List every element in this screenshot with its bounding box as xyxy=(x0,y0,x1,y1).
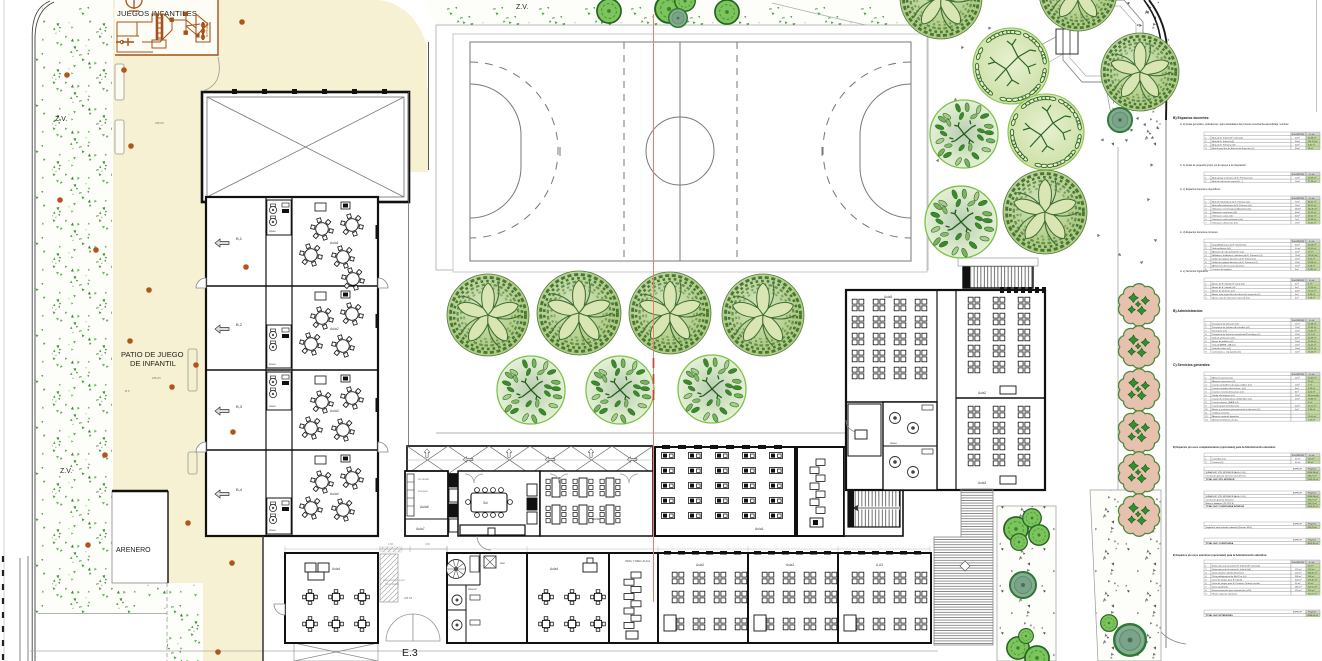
svg-text:S. útil: S. útil xyxy=(1309,197,1315,200)
svg-text:9,28 m²: 9,28 m² xyxy=(1308,264,1315,267)
svg-text:14,45 m²: 14,45 m² xyxy=(1308,343,1317,346)
svg-text:S.út (RD132): S.út (RD132) xyxy=(1292,279,1304,282)
svg-text:3005,81 m²: 3005,81 m² xyxy=(1308,542,1319,545)
svg-text:B,4: B,4 xyxy=(236,487,243,492)
svg-text:20m²: 20m² xyxy=(1295,397,1300,400)
svg-text:S.út (RD132): S.út (RD132) xyxy=(1292,319,1304,322)
svg-text:104,93 m²: 104,93 m² xyxy=(1308,254,1318,257)
svg-text:Muros y tabiques (12-17% S): Muros y tabiques (12-17% S) xyxy=(1206,502,1235,505)
svg-text:A. a) Aulas generales, polival: A. a) Aulas generales, polivalentes, par… xyxy=(1180,123,1289,126)
svg-text:Secretaría (x1): Secretaría (x1) xyxy=(1212,329,1227,332)
svg-text:fotovoltaico: fotovoltaico xyxy=(385,582,400,586)
svg-text:15m²: 15m² xyxy=(1295,394,1300,397)
svg-text:S. útil: S. útil xyxy=(1309,561,1315,564)
svg-text:S.út (RD132): S.út (RD132) xyxy=(1292,133,1304,136)
svg-text:9,65 m²: 9,65 m² xyxy=(1308,257,1315,260)
svg-text:wc caudal: wc caudal xyxy=(418,478,429,481)
svg-text:11,7 m²: 11,7 m² xyxy=(1308,333,1315,336)
svg-text:S.út (RD132): S.út (RD132) xyxy=(1292,197,1304,200)
svg-text:DE INFANTIL: DE INFANTIL xyxy=(130,359,176,368)
svg-text:Armario bombonas de gas: Armario bombonas de gas xyxy=(1212,418,1239,421)
svg-text:Gimnasio: vestuarios (x2): Gimnasio: vestuarios (x2) xyxy=(1212,211,1237,214)
svg-text:90 m²: 90 m² xyxy=(1295,457,1301,460)
svg-text:5m²: 5m² xyxy=(1295,408,1299,411)
svg-text:3,00: 3,00 xyxy=(425,542,431,546)
svg-text:Despacho de Servicios orientac: Despacho de Servicios orientación/Psicól… xyxy=(1212,333,1260,336)
svg-text:12m²: 12m² xyxy=(1295,326,1300,329)
svg-text:40m²: 40m² xyxy=(1295,136,1300,139)
svg-text:13,05 m²: 13,05 m² xyxy=(1308,221,1317,224)
svg-text:15m²: 15m² xyxy=(1295,322,1300,325)
svg-text:Aseo: Aseo xyxy=(269,362,276,366)
svg-text:40m²: 40m² xyxy=(1295,289,1300,292)
svg-text:Aula de E. Primaria (x6): Aula de E. Primaria (x6) xyxy=(1212,143,1235,146)
svg-text:Z.V.: Z.V. xyxy=(516,4,528,11)
svg-text:88 m²: 88 m² xyxy=(1308,461,1314,464)
svg-text:10m²: 10m² xyxy=(1295,383,1300,386)
svg-text:S.út (RD132): S.út (RD132) xyxy=(1292,373,1304,376)
svg-text:10m²: 10m² xyxy=(1295,176,1300,179)
svg-text:Aula1: Aula1 xyxy=(786,563,794,567)
svg-text:SUMA SUP. ÚTIL INTERIOR (A+B+C: SUMA SUP. ÚTIL INTERIOR (A+B+C+D) xyxy=(1206,471,1246,474)
svg-text:1,95 m²: 1,95 m² xyxy=(1308,418,1315,421)
svg-text:916,75 m²: 916,75 m² xyxy=(1308,592,1318,595)
svg-text:30 m²: 30 m² xyxy=(1295,461,1301,464)
svg-text:8,85 m²: 8,85 m² xyxy=(1308,143,1315,146)
svg-text:496,81 m²: 496,81 m² xyxy=(1308,578,1318,581)
svg-text:A. b) Aulas de pequeño grupo y: A. b) Aulas de pequeño grupo y/o de apoy… xyxy=(1180,164,1247,167)
svg-text:336,21 m²: 336,21 m² xyxy=(1308,474,1318,477)
svg-text:Z.V.: Z.V. xyxy=(55,116,67,123)
svg-text:336,21 m²: 336,21 m² xyxy=(1308,498,1318,501)
svg-text:B,1: B,1 xyxy=(236,236,243,241)
svg-text:C) Servicios generales:: C) Servicios generales: xyxy=(1173,363,1211,367)
svg-text:Proyecto: Proyecto xyxy=(1308,611,1317,614)
svg-text:Proyecto: Proyecto xyxy=(1308,539,1317,542)
svg-text:120 m²: 120 m² xyxy=(1295,568,1302,571)
svg-text:54,98 m²: 54,98 m² xyxy=(1308,136,1317,139)
svg-text:300 m²: 300 m² xyxy=(1295,578,1302,581)
svg-text:Resto espacios exteriores: Resto espacios exteriores xyxy=(1212,592,1238,595)
svg-text:40,98 m²: 40,98 m² xyxy=(1308,336,1317,339)
svg-text:S. útil: S. útil xyxy=(1309,240,1315,243)
svg-text:Aula2: Aula2 xyxy=(330,327,339,331)
svg-text:Aula5: Aula5 xyxy=(884,295,892,299)
svg-text:S.út (RD132): S.út (RD132) xyxy=(1292,561,1304,564)
svg-text:131,41 m²: 131,41 m² xyxy=(1308,526,1318,529)
svg-text:Aseos y vestuarios para person: Aseos y vestuarios para personal no doce… xyxy=(1212,408,1260,411)
svg-text:12m²: 12m² xyxy=(1295,333,1300,336)
svg-text:123 m²: 123 m² xyxy=(1295,571,1302,574)
svg-text:Cuarto grupo incendios (x1): Cuarto grupo incendios (x1) xyxy=(1212,404,1239,407)
svg-text:0,65 m²: 0,65 m² xyxy=(1308,387,1315,390)
svg-text:Aula4: Aula4 xyxy=(592,517,601,521)
svg-text:Aseo: Aseo xyxy=(269,229,276,233)
svg-text:Almacén repuestos (x1): Almacén repuestos (x1) xyxy=(1212,380,1235,383)
svg-text:No procede: No procede xyxy=(1308,394,1320,397)
svg-text:A. c) Espacios docentes especí: A. c) Espacios docentes específicos: xyxy=(1180,188,1221,191)
svg-text:Aseo: Aseo xyxy=(269,404,276,408)
svg-text:15m²: 15m² xyxy=(1295,257,1300,260)
svg-text:75m²: 75m² xyxy=(1295,254,1300,257)
svg-text:15,38 m²: 15,38 m² xyxy=(1308,322,1317,325)
svg-text:Cuartos de limpieza: Cuartos de limpieza xyxy=(1212,268,1232,271)
svg-text:Zona exterior cubierta (Porche: Zona exterior cubierta (Porches) xyxy=(1212,571,1244,574)
svg-text:Estacionamiento para automóvil: Estacionamiento para automóviles (x10) xyxy=(1212,589,1251,592)
svg-text:90 m²: 90 m² xyxy=(1295,582,1301,585)
svg-text:Zona de juegos para E. Infanti: Zona de juegos para E. Infantil xyxy=(1212,578,1242,581)
svg-text:S. útil: S. útil xyxy=(1309,373,1315,376)
svg-text:Aseos de alumnos (x2): Aseos de alumnos (x2) xyxy=(1212,289,1235,292)
svg-text:Caldera existente: Caldera existente xyxy=(1212,411,1230,414)
svg-text:Aula1: Aula1 xyxy=(755,527,764,531)
svg-text:B,2: B,2 xyxy=(236,322,243,327)
svg-text:A. d) Espacios docentes comune: A. d) Espacios docentes comunes xyxy=(1180,231,1219,234)
svg-text:2332,62 m²: 2332,62 m² xyxy=(1308,478,1319,481)
svg-text:Aseos sala de educación especi: Aseos sala de educación especial (x1) xyxy=(1212,296,1250,299)
svg-text:Sala multiusos (x1): Sala multiusos (x1) xyxy=(1212,247,1231,250)
svg-text:Zona ajardinada: Zona ajardinada xyxy=(1212,585,1229,588)
svg-text:Aula de Informática de E. Prim: Aula de Informática de E. Primaria (x1) xyxy=(1212,200,1250,203)
svg-text:30m²: 30m² xyxy=(1295,140,1300,143)
svg-text:20,45 m²: 20,45 m² xyxy=(1308,376,1317,379)
svg-text:Cuarto de instalaciones ambien: Cuarto de instalaciones ambientales (x1) xyxy=(1212,397,1252,400)
svg-text:250 m²: 250 m² xyxy=(1295,589,1302,592)
svg-text:15m²: 15m² xyxy=(1295,329,1300,332)
svg-text:5 m²: 5 m² xyxy=(1308,282,1312,285)
svg-text:41,39 m²: 41,39 m² xyxy=(1308,211,1317,214)
svg-text:Aseos auto-específica de educa: Aseos auto-específica de educación espec… xyxy=(1212,293,1260,296)
svg-text:Extensión aula al exterior E.: Extensión aula al exterior E. Infantil (… xyxy=(1212,568,1251,571)
svg-text:25 m²: 25 m² xyxy=(1308,380,1314,383)
svg-text:Sala de visitas (x1): Sala de visitas (x1) xyxy=(1212,347,1231,350)
svg-text:D) Espacios p/o usos complemen: D) Espacios p/o usos complementarios (op… xyxy=(1173,446,1276,449)
svg-text:40m²: 40m² xyxy=(1295,336,1300,339)
svg-text:B) Administración:: B) Administración: xyxy=(1173,309,1203,313)
svg-text:929,13 m²: 929,13 m² xyxy=(1308,585,1318,588)
svg-text:15m²: 15m² xyxy=(1295,221,1300,224)
svg-text:9,085 m²: 9,085 m² xyxy=(1308,268,1317,271)
svg-text:vest.pers: vest.pers xyxy=(418,490,429,493)
svg-text:6m²: 6m² xyxy=(1295,268,1299,271)
svg-text:2856,81 m²: 2856,81 m² xyxy=(1308,505,1319,508)
svg-text:TOTAL SUP. EXTERIORES: TOTAL SUP. EXTERIORES xyxy=(1206,614,1234,617)
svg-text:40m²: 40m² xyxy=(1295,211,1300,214)
svg-text:B,5: B,5 xyxy=(125,389,130,393)
svg-text:10m²: 10m² xyxy=(1295,340,1300,343)
svg-text:14,98 m²: 14,98 m² xyxy=(1308,218,1317,221)
svg-text:4246,05 m²: 4246,05 m² xyxy=(1308,614,1319,617)
svg-text:Conserjería + reprografía (x1): Conserjería + reprografía (x1) xyxy=(1212,350,1241,353)
svg-text:S. útil: S. útil xyxy=(1309,319,1315,322)
svg-text:Aseo: Aseo xyxy=(269,528,276,532)
svg-text:Almacenes de recursos docentes: Almacenes de recursos docentes xyxy=(1212,264,1245,267)
svg-text:13,65 m²: 13,65 m² xyxy=(1308,326,1317,329)
svg-text:Pista polideportiva de 44x22 m: Pista polideportiva de 44x22 m (x1) xyxy=(1212,575,1247,578)
svg-text:Sala de AMPA + AA (x1): Sala de AMPA + AA (x1) xyxy=(1212,343,1236,346)
svg-text:2/B,63: 2/B,63 xyxy=(152,376,161,380)
svg-text:15m²: 15m² xyxy=(1295,343,1300,346)
svg-text:S.út (RD132): S.út (RD132) xyxy=(1292,173,1304,176)
svg-text:Aula6: Aula6 xyxy=(420,505,429,509)
svg-text:A. e) Servicios higiénicos: A. e) Servicios higiénicos xyxy=(1180,270,1209,273)
svg-text:58 m²: 58 m² xyxy=(1308,147,1314,150)
svg-text:286 m²: 286 m² xyxy=(1295,585,1302,588)
svg-text:5m²: 5m² xyxy=(1295,293,1299,296)
svg-text:4,38 m²: 4,38 m² xyxy=(1308,296,1315,299)
svg-text:S. útil: S. útil xyxy=(1309,279,1315,282)
svg-text:333,21 m²: 333,21 m² xyxy=(1308,502,1318,505)
svg-text:250 m²: 250 m² xyxy=(1308,589,1315,592)
svg-text:Despacho de Jefatura de estudi: Despacho de Jefatura de estudios (x1) xyxy=(1212,326,1250,329)
svg-text:Almacén general (x1): Almacén general (x1) xyxy=(1212,376,1233,379)
svg-text:90 m²: 90 m² xyxy=(1308,582,1314,585)
svg-text:1,50: 1,50 xyxy=(388,542,394,546)
svg-text:Aula de E. Infantil (x4): Aula de E. Infantil (x4) xyxy=(1212,140,1234,143)
svg-text:75m²: 75m² xyxy=(1295,200,1300,203)
svg-text:Proyecto: Proyecto xyxy=(1308,492,1317,495)
svg-text:5m²: 5m² xyxy=(1295,296,1299,299)
svg-text:30m²: 30m² xyxy=(1295,147,1300,150)
svg-text:SUMA SUP. ÚTIL INTERIOR (A+B+C: SUMA SUP. ÚTIL INTERIOR (A+B+C+D) xyxy=(1206,495,1246,498)
svg-text:30m²: 30m² xyxy=(1295,243,1300,246)
svg-text:90 m²: 90 m² xyxy=(1295,247,1301,250)
svg-text:TOTAL SUP. CONSTRUIDA INTERIOR: TOTAL SUP. CONSTRUIDA INTERIOR xyxy=(1206,505,1245,508)
svg-text:Aula4: Aula4 xyxy=(332,567,340,571)
svg-text:10m²: 10m² xyxy=(1295,250,1300,253)
svg-text:19,25 m²: 19,25 m² xyxy=(1308,347,1317,350)
svg-text:2/B,63: 2/B,63 xyxy=(404,596,413,600)
svg-text:2/B,63: 2/B,63 xyxy=(155,121,164,125)
svg-text:Salón de equipos docentes de E: Salón de equipos docentes de E. Primaria… xyxy=(1212,261,1258,264)
svg-text:Comedor (x1): Comedor (x1) xyxy=(1212,457,1226,460)
svg-text:21,45 m²: 21,45 m² xyxy=(1308,404,1317,407)
svg-text:Aula7: Aula7 xyxy=(416,527,425,531)
svg-text:6m²: 6m² xyxy=(1295,387,1299,390)
svg-text:Circulación (pasos) interiores: Circulación (pasos) interiores (12-10% S… xyxy=(1206,474,1246,477)
svg-text:15,59 m²: 15,59 m² xyxy=(1308,286,1317,289)
svg-text:Z.V.: Z.V. xyxy=(60,468,72,475)
svg-text:Aseos de E. Infantil (x4): Aseos de E. Infantil (x4) xyxy=(1212,286,1235,289)
svg-text:Grupo electrógeno (x1): Grupo electrógeno (x1) xyxy=(1212,394,1235,397)
svg-text:Aula apoyo y refuerzo de E. Pr: Aula apoyo y refuerzo de E. Primaria (x2… xyxy=(1212,176,1252,179)
svg-text:ARENERO: ARENERO xyxy=(116,547,151,554)
svg-text:Cuarto exterior: | RA/B (x1): Cuarto exterior: | RA/B (x1) xyxy=(1212,401,1239,404)
svg-text:Gimnasio: almacenes (x1): Gimnasio: almacenes (x1) xyxy=(1212,222,1238,224)
svg-text:Cuarto o recinto de basuras (x: Cuarto o recinto de basuras (x1) xyxy=(1212,390,1244,393)
svg-text:Aula3: Aula3 xyxy=(978,481,986,485)
svg-text:10m²: 10m² xyxy=(1295,180,1300,183)
svg-text:Asc: Asc xyxy=(500,561,506,565)
svg-text:Aula de E. Infantil (3º ciclo): Aula de E. Infantil (3º ciclo) (x3) xyxy=(1212,136,1243,139)
svg-text:TOBOGAN: TOBOGAN xyxy=(205,22,209,37)
svg-text:Aula2: Aula2 xyxy=(696,563,704,567)
svg-text:20m²: 20m² xyxy=(1295,376,1300,379)
svg-text:462,85 m²: 462,85 m² xyxy=(1308,207,1318,210)
svg-text:Aula4: Aula4 xyxy=(550,567,558,571)
svg-text:Aseos de adultos (x2): Aseos de adultos (x2) xyxy=(1212,340,1233,343)
svg-text:2004,96 m²: 2004,96 m² xyxy=(1308,471,1319,474)
svg-text:84,91 m²: 84,91 m² xyxy=(1308,200,1317,203)
svg-text:5,80 m²: 5,80 m² xyxy=(1308,408,1315,411)
svg-text:S. útil: S. útil xyxy=(1309,173,1315,176)
svg-text:Aula3: Aula3 xyxy=(330,409,339,413)
svg-text:Aula taller polivalente de E.: Aula taller polivalente de E. Primaria (… xyxy=(1212,204,1252,207)
svg-text:16,23 m²: 16,23 m² xyxy=(1308,350,1317,353)
svg-text:Sala de profesores (x1): Sala de profesores (x1) xyxy=(1212,336,1235,339)
svg-text:75m²: 75m² xyxy=(1295,204,1300,207)
svg-text:16,86 m²: 16,86 m² xyxy=(1308,397,1317,400)
svg-text:Cuarto conta/dores de agua-cal: Cuarto conta/dores de agua-caldera (x1) xyxy=(1212,383,1252,386)
svg-text:120 m²: 120 m² xyxy=(1308,568,1315,571)
svg-text:6m²: 6m² xyxy=(1295,390,1299,393)
svg-text:Aseo2: Aseo2 xyxy=(468,587,477,591)
svg-text:Almacén de sala polivalente (x: Almacén de sala polivalente (x1) xyxy=(1212,250,1244,253)
svg-text:Cuarto contador eléctrico/asc.: Cuarto contador eléctrico/asc. (x1) xyxy=(1212,387,1246,390)
svg-text:20m²: 20m² xyxy=(1295,404,1300,407)
svg-text:486,82 m²: 486,82 m² xyxy=(1308,571,1318,574)
svg-text:Salón de equipos docentes de E: Salón de equipos docentes de E. Infantil… xyxy=(1212,257,1256,260)
svg-text:10m²: 10m² xyxy=(1295,347,1300,350)
svg-text:S.út (RD132): S.út (RD132) xyxy=(1292,240,1304,243)
svg-text:A,A3: A,A3 xyxy=(876,563,883,567)
svg-text:5m²: 5m² xyxy=(1295,282,1299,285)
svg-text:33,18 m²: 33,18 m² xyxy=(1308,243,1317,246)
svg-text:15,85 m²: 15,85 m² xyxy=(1308,329,1317,332)
svg-text:Aseos de E. Infantil (3º ciclo: Aseos de E. Infantil (3º ciclo) (x3) xyxy=(1212,282,1245,285)
svg-text:27,38 m²: 27,38 m² xyxy=(1308,180,1317,183)
svg-text:460m²: 460m² xyxy=(1295,207,1301,210)
svg-text:S.út (RD132): S.út (RD132) xyxy=(1292,454,1304,457)
svg-text:29 m²: 29 m² xyxy=(1308,250,1314,253)
svg-text:13,45 m²: 13,45 m² xyxy=(1308,415,1317,418)
svg-text:101,28 m²: 101,28 m² xyxy=(1308,140,1318,143)
svg-text:Salas/Audiencias de E. Infanti: Salas/Audiencias de E. Infantil (x4) xyxy=(1212,243,1246,246)
svg-text:5 m²: 5 m² xyxy=(1308,401,1312,404)
svg-text:Despacho de dirección (x1): Despacho de dirección (x1) xyxy=(1212,322,1239,325)
svg-text:Aula4: Aula4 xyxy=(330,492,339,496)
svg-text:40m²: 40m² xyxy=(1295,214,1300,217)
svg-text:Aseo: Aseo xyxy=(890,441,897,445)
svg-text:54,49 m²: 54,49 m² xyxy=(1308,176,1317,179)
svg-text:5m²: 5m² xyxy=(1295,286,1299,289)
svg-text:Gimnasio, recinto/sala polidep: Gimnasio, recinto/sala polideportiva (x1… xyxy=(1212,207,1251,210)
svg-text:28,38 m²: 28,38 m² xyxy=(1308,261,1317,264)
svg-text:21,46 m²: 21,46 m² xyxy=(1308,340,1317,343)
svg-text:Aula de educación especial (..: Aula de educación especial (...) xyxy=(1212,180,1243,183)
svg-text:Cocina (x1): Cocina (x1) xyxy=(1212,462,1223,464)
svg-text:91,35 m²: 91,35 m² xyxy=(1308,247,1317,250)
svg-text:Zona de juegos para E. Primari: Zona de juegos para E. Primaria - Huerto… xyxy=(1212,582,1260,585)
svg-text:ORG Y REC AULA: ORG Y REC AULA xyxy=(625,559,650,563)
svg-text:Aula1: Aula1 xyxy=(330,241,339,245)
svg-text:B,3: B,3 xyxy=(236,404,243,409)
svg-text:74,70 m²: 74,70 m² xyxy=(1308,289,1317,292)
svg-text:PATIO DE JUEGO: PATIO DE JUEGO xyxy=(121,350,184,359)
svg-text:Gimnasio: profesor/monitor (x1: Gimnasio: profesor/monitor (x1) xyxy=(1212,218,1243,221)
svg-text:Almacén material deportivo: Almacén material deportivo xyxy=(1212,415,1239,418)
svg-text:Extensión aula al exterior E.: Extensión aula al exterior E. Infantil (… xyxy=(1212,564,1260,567)
svg-text:133 m²: 133 m² xyxy=(1308,457,1315,460)
svg-text:3,05 m²: 3,05 m² xyxy=(1308,390,1315,393)
svg-text:15m²: 15m² xyxy=(1295,264,1300,267)
svg-text:E) Espacios p/o usos exteriore: E) Espacios p/o usos exteriores (opciona… xyxy=(1173,554,1267,557)
svg-text:TOTAL SUP. CONSTRUIDA: TOTAL SUP. CONSTRUIDA xyxy=(1206,542,1234,545)
svg-text:S. útil: S. útil xyxy=(1309,454,1315,457)
svg-text:6,88 m²: 6,88 m² xyxy=(1308,293,1315,296)
svg-text:40m²: 40m² xyxy=(1295,143,1300,146)
svg-text:Proyecto: Proyecto xyxy=(1308,523,1317,526)
svg-text:Sal: Sal xyxy=(483,501,488,505)
svg-text:Superficie zona exterior cubie: Superficie zona exterior cubierta (Porch… xyxy=(1206,526,1253,529)
svg-text:15m²: 15m² xyxy=(1295,261,1300,264)
svg-text:S. útil: S. útil xyxy=(1309,133,1315,136)
svg-text:7m²: 7m² xyxy=(1295,218,1299,221)
svg-text:E.3: E.3 xyxy=(402,647,418,659)
svg-text:84,21 m²: 84,21 m² xyxy=(1308,204,1317,207)
svg-text:7 m²: 7 m² xyxy=(1308,383,1312,386)
svg-text:Biblioteca, mediateca, videote: Biblioteca, mediateca, videoteca de E. P… xyxy=(1212,254,1262,257)
svg-text:12m²: 12m² xyxy=(1295,350,1300,353)
svg-text:54 m²: 54 m² xyxy=(1308,564,1314,567)
svg-text:B) Espacios docentes:: B) Espacios docentes: xyxy=(1173,116,1209,120)
svg-text:968 m²: 968 m² xyxy=(1308,575,1315,578)
svg-text:2004,96 m²: 2004,96 m² xyxy=(1308,495,1319,498)
svg-text:Aula Específica de Educación E: Aula Específica de Educación Especial (x… xyxy=(1212,147,1254,150)
svg-text:TOTAL SUP. ÚTIL INTERIOR: TOTAL SUP. ÚTIL INTERIOR xyxy=(1206,478,1235,481)
svg-text:968 m²: 968 m² xyxy=(1295,575,1302,578)
svg-text:Circulación (pasos) interiores: Circulación (pasos) interiores xyxy=(1206,498,1235,501)
svg-text:Aula2: Aula2 xyxy=(978,391,986,395)
svg-text:Proyecto: Proyecto xyxy=(1308,468,1317,471)
svg-text:36,05 m²: 36,05 m² xyxy=(1308,214,1317,217)
